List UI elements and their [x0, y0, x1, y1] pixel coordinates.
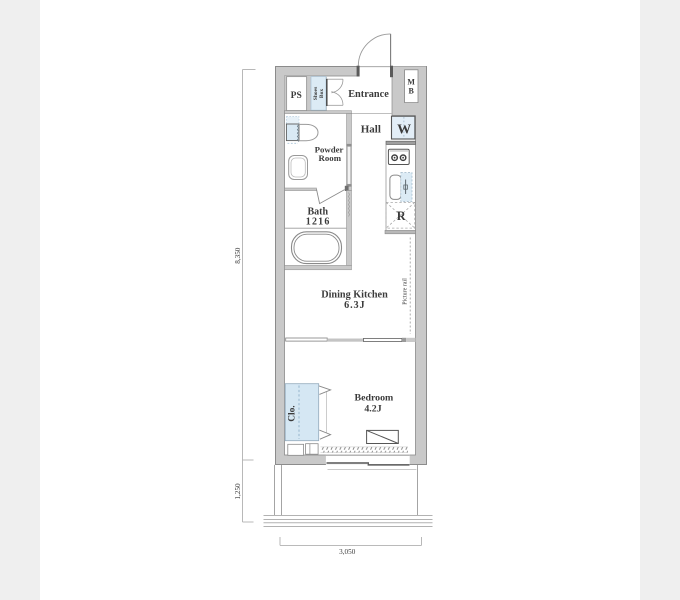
svg-text:M: M — [407, 78, 415, 87]
svg-text:Room: Room — [319, 153, 342, 163]
svg-text:3,050: 3,050 — [339, 548, 356, 556]
svg-text:Entrance: Entrance — [348, 89, 389, 100]
svg-text:Clo.: Clo. — [287, 405, 297, 421]
svg-text:Bedroom: Bedroom — [355, 392, 395, 403]
svg-text:B: B — [409, 87, 415, 96]
svg-text:Picture rail: Picture rail — [402, 278, 408, 305]
svg-text:1,250: 1,250 — [234, 483, 242, 500]
svg-text:6.3J: 6.3J — [344, 300, 365, 311]
svg-text:R: R — [397, 209, 406, 223]
svg-text:4.2J: 4.2J — [364, 403, 381, 414]
svg-text:W: W — [397, 123, 411, 138]
svg-text:8,350: 8,350 — [234, 247, 242, 264]
svg-text:Dining Kitchen: Dining Kitchen — [321, 289, 388, 300]
svg-text:PS: PS — [291, 91, 302, 101]
svg-text:Hall: Hall — [361, 124, 381, 136]
svg-text:1216: 1216 — [306, 217, 331, 228]
svg-text:Box: Box — [319, 89, 325, 98]
